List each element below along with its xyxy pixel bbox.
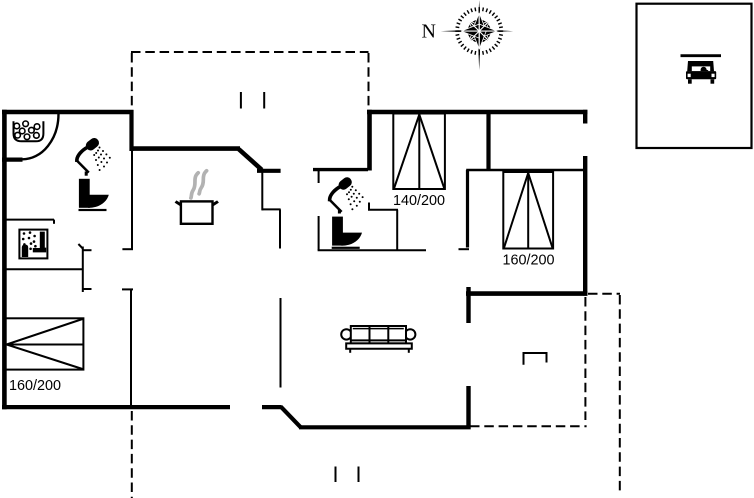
svg-text:N: N (422, 21, 436, 43)
svg-text:140/200: 140/200 (393, 193, 445, 209)
svg-text:160/200: 160/200 (503, 253, 555, 269)
svg-text:160/200: 160/200 (9, 378, 61, 394)
